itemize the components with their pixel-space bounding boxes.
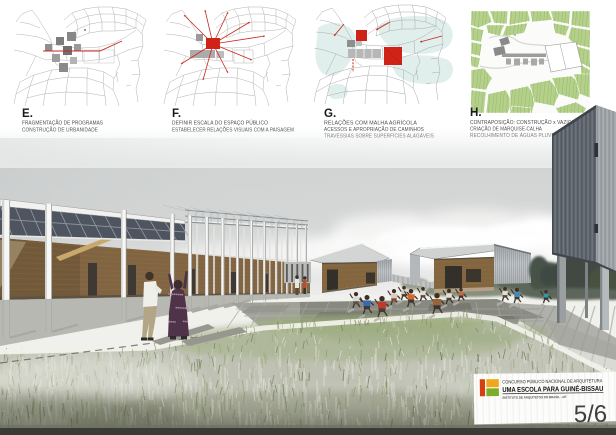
svg-text:H.: H. — [470, 107, 482, 119]
svg-text:5/6: 5/6 — [574, 401, 608, 428]
svg-text:FRAGMENTAÇÃO DE PROGRAMAS: FRAGMENTAÇÃO DE PROGRAMAS — [22, 120, 103, 127]
svg-text:F.: F. — [172, 108, 181, 120]
svg-text:DEFINIR ESCALA DO ESPAÇO PÚBLI: DEFINIR ESCALA DO ESPAÇO PÚBLICO — [172, 120, 268, 127]
svg-text:RELAÇÕES COM MALHA AGRÍCOLA: RELAÇÕES COM MALHA AGRÍCOLA — [324, 120, 417, 127]
svg-text:G.: G. — [324, 108, 336, 120]
svg-text:CONCURSO PÚBLICO NACIONAL DE A: CONCURSO PÚBLICO NACIONAL DE ARQUITETURA — [502, 377, 603, 384]
svg-text:INSTITUTO DE ARQUITETOS DO BRA: INSTITUTO DE ARQUITETOS DO BRASIL - DF — [502, 395, 566, 400]
svg-text:CONTRAPOSIÇÃO: CONSTRUÇÃO x VA: CONTRAPOSIÇÃO: CONSTRUÇÃO x VAZIOS — [470, 119, 575, 126]
svg-text:E.: E. — [22, 108, 33, 120]
